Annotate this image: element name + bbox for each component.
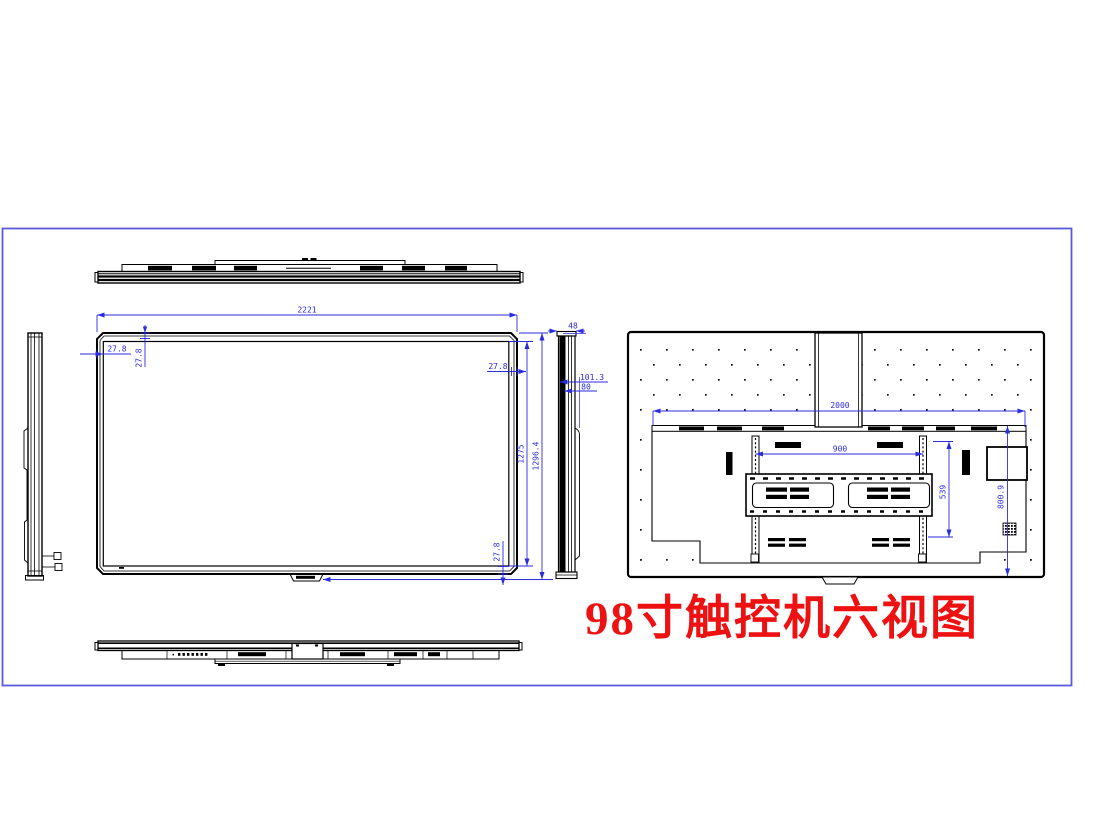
front-sensor-bar — [296, 576, 315, 579]
dim-screen-height: 1275 — [517, 444, 526, 463]
dim-vesa-height: 539 — [939, 485, 948, 500]
dim-depth: 48 — [568, 322, 578, 331]
dim-depth-with-mount: 101.3 — [580, 373, 604, 382]
dim-bezel-right: 27.8 — [488, 362, 507, 371]
dim-vesa-width: 900 — [833, 445, 848, 454]
wall-mount-bracket — [746, 474, 932, 516]
back-column — [815, 333, 862, 427]
dim-back-height: 800.9 — [997, 485, 1006, 509]
dim-back-width: 2000 — [830, 401, 849, 410]
drawing-page: 2221 27.8 27.8 27.8 27.8 1275 1296.4 — [0, 0, 1095, 823]
dim-bezel-top-left: 27.8 — [107, 345, 126, 354]
dim-bezel-bottom: 27.8 — [493, 542, 502, 561]
power-socket-grille — [1003, 523, 1016, 535]
dim-bezel-top: 27.8 — [135, 348, 144, 367]
dim-mount-depth: 80 — [581, 382, 591, 391]
power-module-box — [987, 447, 1027, 480]
drawing-canvas: 2221 27.8 27.8 27.8 27.8 1275 1296.4 — [0, 0, 1095, 823]
back-view — [628, 332, 1044, 584]
dim-overall-height: 1296.4 — [532, 441, 541, 470]
back-bottom-tab — [822, 577, 858, 584]
drawing-title: 98寸触控机六视图 — [585, 594, 1025, 646]
dim-front-width: 2221 — [297, 306, 316, 315]
